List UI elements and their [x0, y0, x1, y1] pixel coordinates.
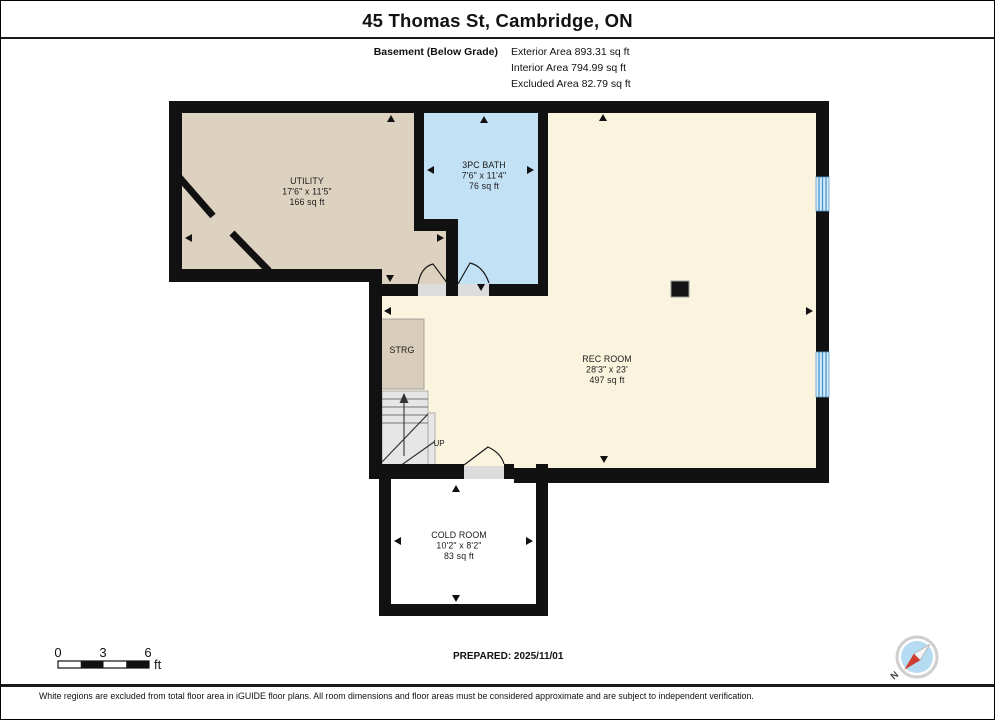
- stairs-up-label: UP: [433, 439, 444, 448]
- window-icon: [816, 352, 829, 397]
- door-sill: [458, 284, 489, 296]
- scale-tick-0: 0: [54, 645, 61, 660]
- scale-bar: 0 3 6 ft: [54, 645, 161, 672]
- utility-area: 166 sq ft: [289, 197, 325, 207]
- compass-icon: N: [889, 637, 937, 682]
- cold-room-dims: 10'2" x 8'2": [436, 541, 481, 551]
- scale-tick-3: 3: [99, 645, 106, 660]
- disclaimer-text: White regions are excluded from total fl…: [39, 691, 754, 701]
- rec-room-dims: 28'3" x 23': [586, 365, 628, 375]
- rec-room-area: 497 sq ft: [589, 375, 625, 385]
- door-sill: [464, 466, 504, 479]
- storage-label: STRG: [389, 345, 414, 355]
- cold-room-label: COLD ROOM: [431, 530, 487, 540]
- utility-label: UTILITY: [290, 176, 324, 186]
- bath-dims: 7'6" x 11'4": [462, 171, 507, 181]
- window-icon: [816, 177, 829, 211]
- scale-tick-6: 6: [144, 645, 151, 660]
- floorplan-drawing: UTILITY 17'6" x 11'5" 166 sq ft 3PC BATH…: [1, 1, 995, 720]
- bath-label: 3PC BATH: [462, 160, 506, 170]
- prepared-date: PREPARED: 2025/11/01: [453, 651, 563, 662]
- door-sill: [418, 284, 448, 296]
- rec-room-label: REC ROOM: [582, 354, 632, 364]
- bath-area: 76 sq ft: [469, 181, 499, 191]
- compass-north-label: N: [889, 669, 902, 682]
- staircase: [382, 391, 435, 471]
- footer-divider: [1, 684, 994, 687]
- support-post-icon: [671, 281, 689, 297]
- scale-unit-label: ft: [154, 657, 162, 672]
- utility-dims: 17'6" x 11'5": [282, 187, 332, 197]
- floorplan-page: 45 Thomas St, Cambridge, ON Basement (Be…: [0, 0, 995, 720]
- cold-room-area: 83 sq ft: [444, 551, 474, 561]
